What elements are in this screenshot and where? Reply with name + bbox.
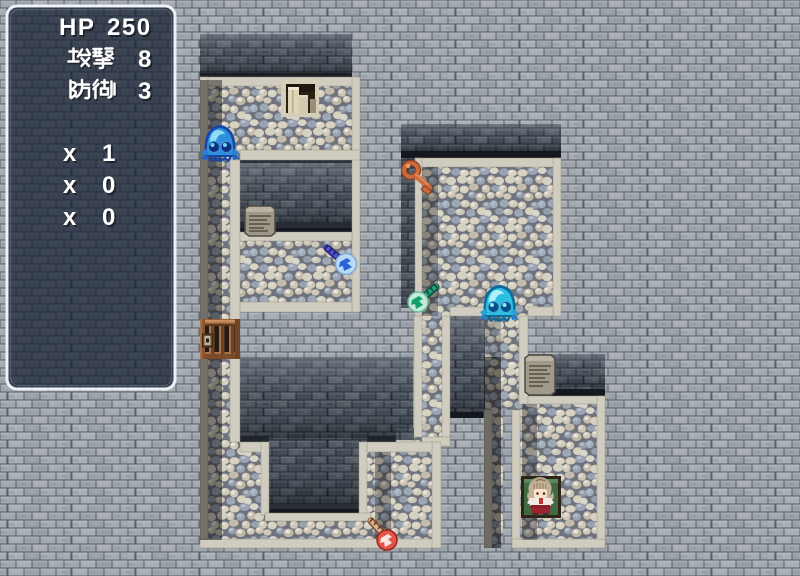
- svg-text:3: 3: [138, 78, 153, 105]
- svg-text:0: 0: [102, 204, 117, 231]
- svg-text:1: 1: [102, 140, 117, 167]
- svg-text:x: x: [63, 204, 78, 231]
- svg-text:x: x: [63, 172, 78, 199]
- svg-text:HP: HP: [59, 14, 95, 41]
- svg-text:250: 250: [107, 14, 152, 41]
- svg-text:8: 8: [138, 46, 153, 73]
- svg-text:0: 0: [102, 172, 117, 199]
- svg-text:x: x: [63, 140, 78, 167]
